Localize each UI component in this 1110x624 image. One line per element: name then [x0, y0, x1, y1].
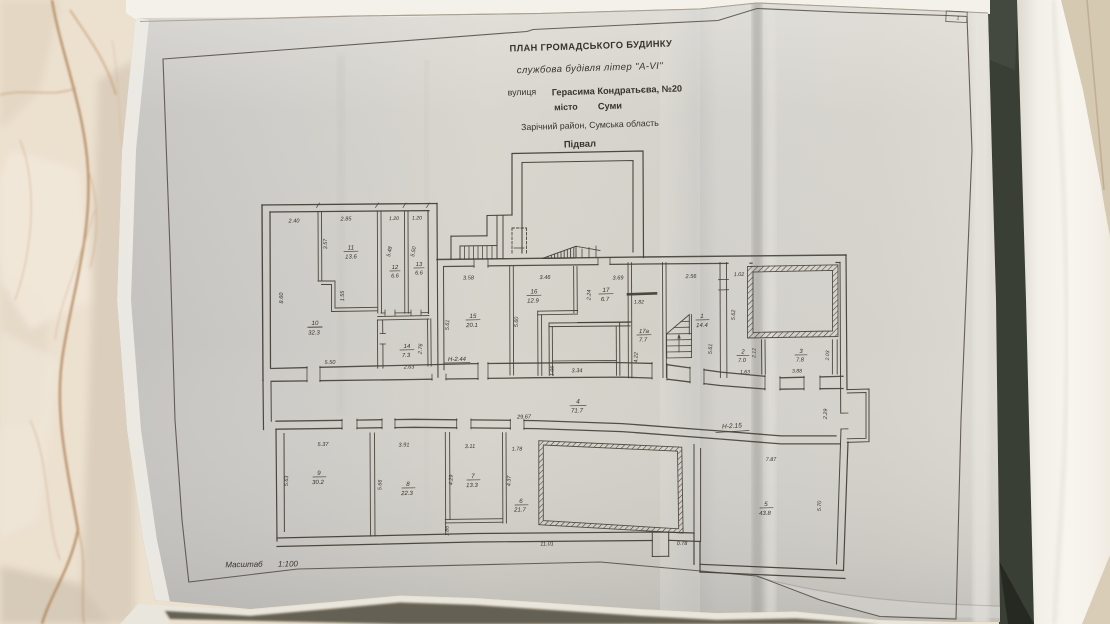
svg-text:5.70: 5.70 — [817, 501, 823, 512]
svg-text:3.57: 3.57 — [323, 238, 329, 250]
svg-text:1.78: 1.78 — [512, 446, 523, 452]
svg-text:1.02: 1.02 — [734, 272, 745, 278]
svg-text:12.9: 12.9 — [527, 298, 539, 304]
svg-text:3.69: 3.69 — [612, 275, 623, 281]
svg-text:5.60: 5.60 — [514, 317, 520, 328]
svg-text:13.6: 13.6 — [345, 254, 357, 260]
svg-text:1.06: 1.06 — [550, 366, 556, 376]
svg-text:11: 11 — [348, 244, 355, 251]
svg-text:місто: місто — [554, 102, 578, 113]
svg-text:6.6: 6.6 — [391, 273, 400, 279]
svg-text:1: 1 — [700, 313, 704, 320]
svg-text:7.3: 7.3 — [402, 353, 411, 359]
svg-text:6.6: 6.6 — [415, 270, 424, 276]
svg-text:Підвал: Підвал — [564, 137, 596, 149]
svg-text:1.82: 1.82 — [634, 299, 644, 305]
svg-text:2.40: 2.40 — [287, 218, 300, 224]
svg-text:13: 13 — [416, 262, 423, 268]
svg-text:71.7: 71.7 — [571, 407, 584, 414]
svg-text:2.76: 2.76 — [417, 343, 424, 355]
svg-text:7.8: 7.8 — [796, 357, 805, 363]
svg-text:13.3: 13.3 — [466, 483, 478, 489]
svg-text:17: 17 — [602, 287, 610, 294]
svg-text:4.29: 4.29 — [448, 475, 454, 486]
svg-text:11.01: 11.01 — [540, 541, 554, 547]
svg-text:1.55: 1.55 — [340, 290, 346, 302]
svg-text:21.7: 21.7 — [513, 507, 526, 513]
svg-text:5.37: 5.37 — [317, 442, 329, 448]
svg-text:2: 2 — [740, 349, 745, 355]
svg-text:22.3: 22.3 — [400, 491, 413, 497]
svg-text:5.50: 5.50 — [324, 360, 336, 366]
svg-text:4: 4 — [576, 398, 580, 405]
svg-text:5.61: 5.61 — [445, 320, 451, 331]
svg-text:5.61: 5.61 — [708, 344, 714, 355]
svg-text:2.56: 2.56 — [684, 274, 697, 280]
svg-text:16: 16 — [530, 288, 538, 295]
svg-text:Н-2.44: Н-2.44 — [448, 357, 467, 363]
svg-text:1:100: 1:100 — [278, 559, 299, 568]
svg-text:Н-2.15: Н-2.15 — [722, 422, 742, 430]
svg-text:14: 14 — [404, 344, 411, 350]
svg-text:1: 1 — [956, 15, 959, 21]
svg-text:14.4: 14.4 — [696, 323, 708, 329]
svg-text:2.85: 2.85 — [339, 216, 352, 222]
svg-text:2.24: 2.24 — [586, 290, 592, 302]
svg-text:5.63: 5.63 — [284, 476, 290, 487]
svg-text:12: 12 — [392, 265, 399, 271]
svg-text:Масштаб: Масштаб — [225, 560, 263, 570]
svg-text:32.3: 32.3 — [308, 330, 320, 336]
svg-text:7.0: 7.0 — [738, 358, 747, 364]
svg-text:30.2: 30.2 — [312, 480, 324, 486]
svg-text:3.11: 3.11 — [465, 444, 476, 450]
svg-text:3.34: 3.34 — [571, 368, 582, 374]
svg-text:3.88: 3.88 — [792, 368, 802, 374]
svg-text:10: 10 — [311, 320, 319, 327]
svg-text:8.60: 8.60 — [279, 292, 285, 304]
svg-text:вулиця: вулиця — [507, 87, 536, 98]
svg-text:3.58: 3.58 — [463, 275, 475, 281]
svg-text:3.91: 3.91 — [398, 442, 409, 448]
svg-text:1.20: 1.20 — [389, 216, 399, 222]
svg-text:2.29: 2.29 — [823, 409, 829, 421]
svg-text:5.62: 5.62 — [731, 310, 737, 321]
svg-text:43.8: 43.8 — [759, 511, 771, 517]
svg-text:17а: 17а — [639, 329, 650, 335]
svg-text:7.7: 7.7 — [639, 337, 648, 343]
svg-text:6.7: 6.7 — [601, 297, 610, 303]
svg-text:3.46: 3.46 — [539, 275, 551, 281]
svg-text:0.78: 0.78 — [677, 541, 688, 547]
svg-text:1.20: 1.20 — [412, 215, 422, 221]
svg-text:1.86: 1.86 — [444, 526, 450, 536]
svg-text:2.03: 2.03 — [825, 350, 831, 361]
svg-text:4.22: 4.22 — [633, 352, 639, 363]
svg-text:2.12: 2.12 — [751, 348, 757, 359]
svg-text:20.1: 20.1 — [465, 323, 478, 329]
svg-text:Суми: Суми — [598, 101, 623, 112]
svg-text:15: 15 — [469, 313, 477, 320]
svg-text:5.66: 5.66 — [377, 480, 383, 491]
svg-text:1.63: 1.63 — [740, 369, 750, 375]
svg-text:4.37: 4.37 — [506, 475, 512, 487]
svg-text:7.87: 7.87 — [766, 457, 778, 463]
